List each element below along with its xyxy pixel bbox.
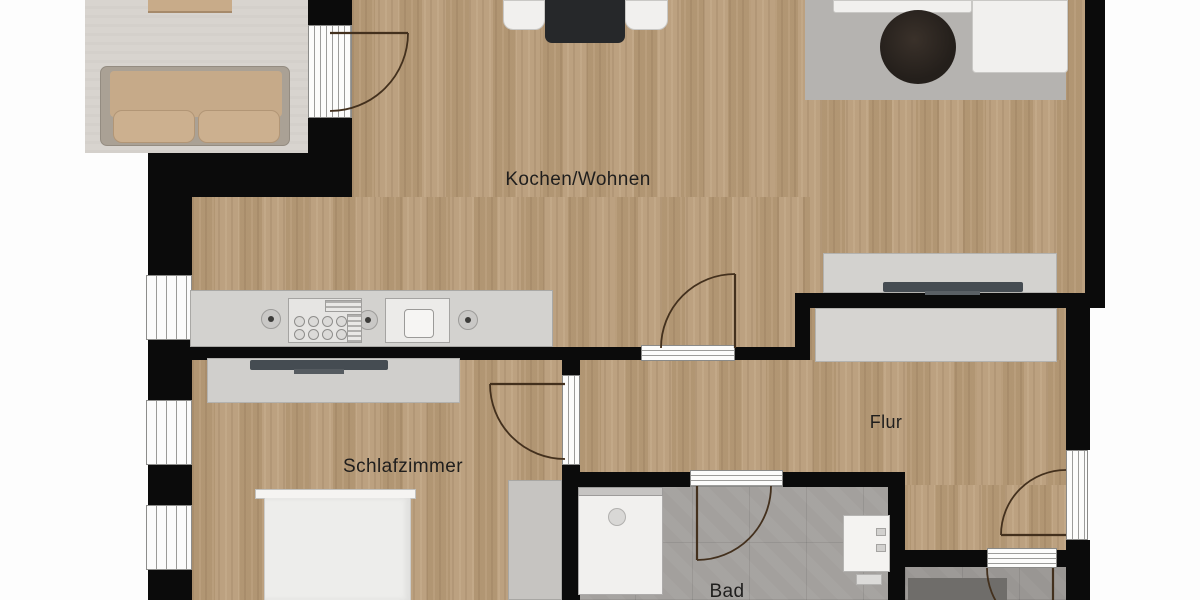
door-frame-balcony <box>308 25 352 118</box>
vanity-faucet-1 <box>876 528 886 536</box>
wall-left-4 <box>148 570 192 600</box>
wall-storage-north-stub <box>1057 550 1066 567</box>
balcony-sofa-seat-right <box>198 110 280 143</box>
storage-cabinet <box>908 578 1007 600</box>
wall-right-top <box>1085 0 1105 300</box>
wall-bath-east <box>888 477 905 600</box>
burner-8 <box>336 329 347 340</box>
door-frame-bathroom <box>690 470 783 487</box>
burner-2 <box>308 316 319 327</box>
wall-left-3 <box>148 465 192 505</box>
shower <box>578 487 663 595</box>
burner-6 <box>308 329 319 340</box>
living-sofa-top <box>833 0 972 13</box>
hallway-sideboard <box>815 308 1057 362</box>
door-frame-bedroom <box>562 375 580 465</box>
shower-rail <box>578 487 663 496</box>
burner-3 <box>322 316 333 327</box>
window-2 <box>146 400 192 465</box>
room-label-hallway: Flur <box>826 412 946 433</box>
cooktop-vent-top <box>325 300 362 312</box>
coffee-table <box>880 10 956 84</box>
door-frame-storage <box>987 548 1057 568</box>
living-tv-stand <box>925 291 980 295</box>
room-label-living: Kochen/Wohnen <box>458 169 698 191</box>
wall-bath-north-east <box>783 472 905 487</box>
kitchen-knob-3 <box>458 310 478 330</box>
wall-bath-north-west <box>580 472 690 487</box>
wall-right-bottom <box>1066 540 1090 600</box>
wall-right-mid <box>1066 300 1090 450</box>
window-1 <box>146 275 192 340</box>
wall-storage-north <box>905 550 987 567</box>
wall-bedroom-east-top <box>562 360 580 375</box>
cooktop-vent-right <box>347 314 362 343</box>
bedroom-tv-stand <box>294 369 344 374</box>
shower-drain <box>608 508 626 526</box>
kitchen-sink-basin <box>404 309 434 338</box>
kitchen-knob-1 <box>261 309 281 329</box>
burner-7 <box>322 329 333 340</box>
burner-5 <box>294 329 305 340</box>
door-frame-entry <box>1066 450 1088 540</box>
living-sofa-right <box>972 0 1068 73</box>
vanity-faucet-2 <box>876 544 886 552</box>
balcony-sofa-seat-left <box>113 110 195 143</box>
floor-plan: Kochen/Wohnen Schlafzimmer Flur Bad <box>0 0 1200 600</box>
wardrobe <box>508 480 562 600</box>
towel <box>856 574 882 585</box>
room-label-bathroom: Bad <box>667 581 787 600</box>
wall-kitchen-east <box>735 347 810 360</box>
balcony-table <box>148 0 232 13</box>
room-label-bedroom: Schlafzimmer <box>283 456 523 478</box>
dining-chair-left <box>503 0 545 30</box>
bed <box>264 498 411 600</box>
dining-table <box>545 0 625 43</box>
door-frame-living-hallway <box>641 345 735 361</box>
hallway-floor-main <box>578 360 1066 485</box>
window-3 <box>146 505 192 570</box>
wall-balcony-east-top <box>308 0 352 25</box>
wall-balcony-east-bottom <box>308 118 352 197</box>
burner-1 <box>294 316 305 327</box>
dining-chair-right <box>625 0 668 30</box>
burner-4 <box>336 316 347 327</box>
wall-living-hallway <box>795 293 1105 308</box>
